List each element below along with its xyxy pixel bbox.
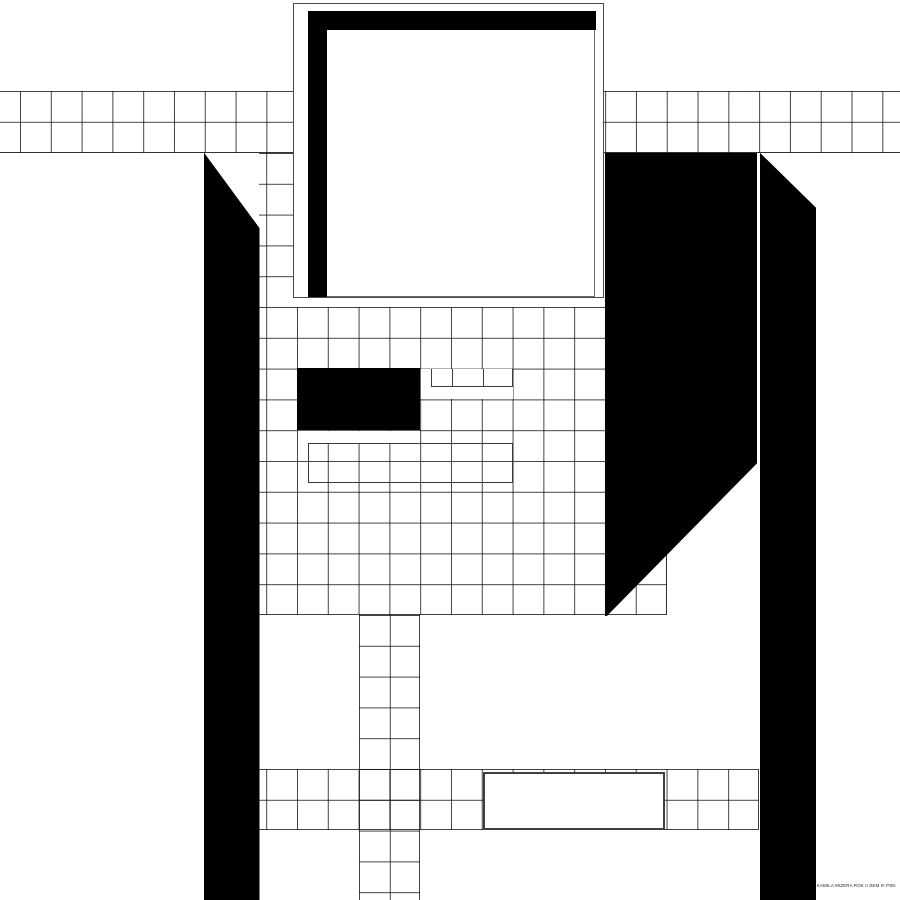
mid-black-rectangle (297, 368, 420, 430)
square-left-bar (308, 11, 327, 297)
outlined-inset-box (308, 443, 513, 483)
band-outlined-box (483, 772, 665, 830)
notch-cell-strip (431, 369, 513, 387)
notch-divider-line (483, 369, 484, 386)
square-inner-frame (327, 30, 595, 297)
artwork-canvas: KAMILA MIZERA ROK II SEM III PSD (0, 0, 900, 900)
square-top-bar (308, 11, 596, 30)
signature-caption: KAMILA MIZERA ROK II SEM III PSD (817, 883, 896, 889)
notch-divider-line (452, 369, 453, 386)
right-black-pillar (760, 153, 816, 900)
white-gap-strip (298, 431, 421, 443)
left-black-pillar (204, 153, 260, 900)
right-black-block (605, 153, 758, 616)
framed-square (293, 3, 604, 298)
bottom-grid-strip (359, 615, 421, 900)
left-grid-column (259, 153, 294, 307)
